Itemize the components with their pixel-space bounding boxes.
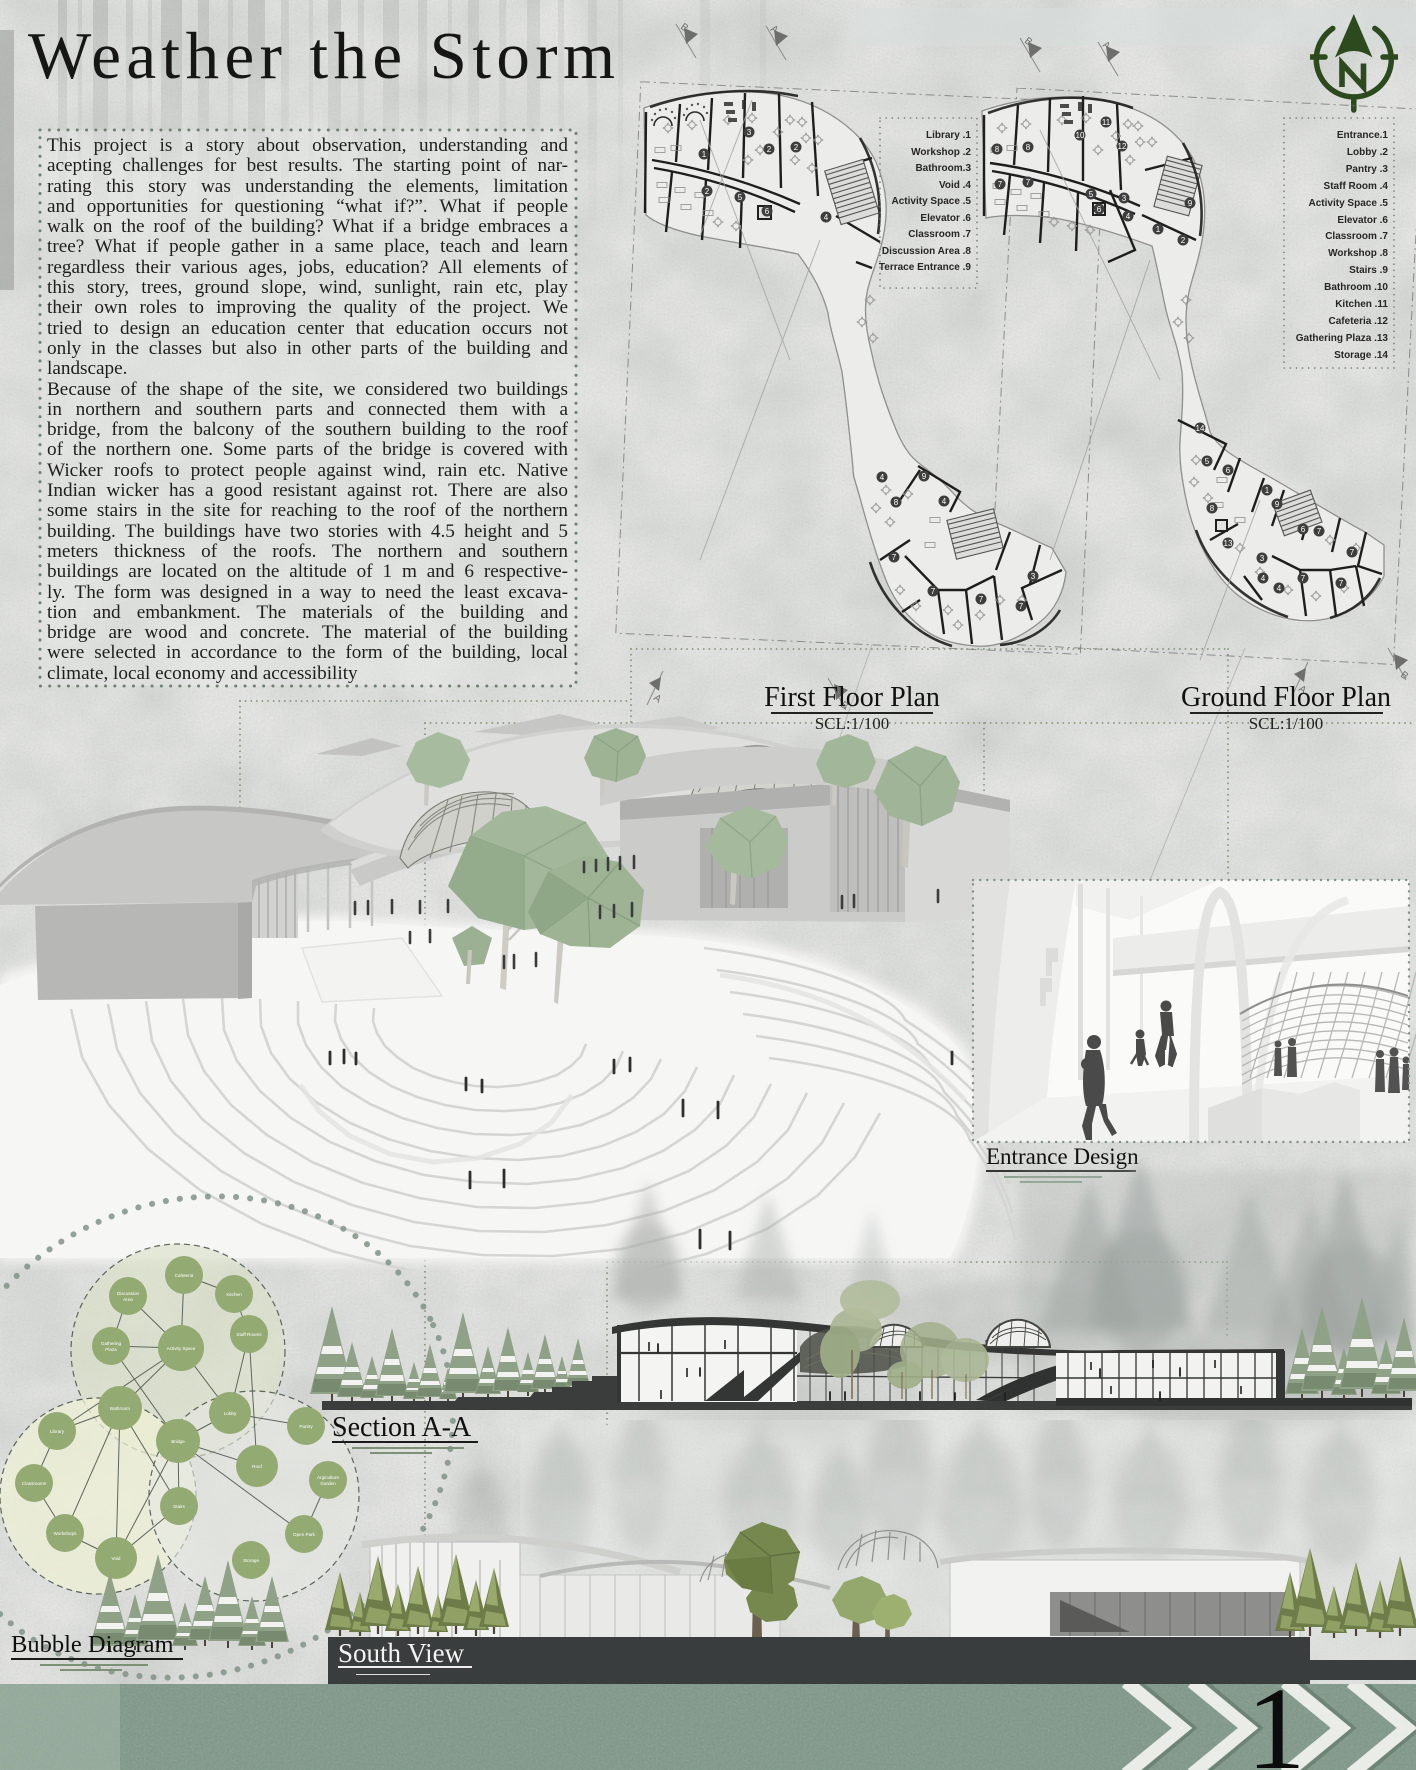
svg-text:Lobby: Lobby: [224, 1411, 237, 1416]
svg-text:Staff Rooms: Staff Rooms: [236, 1332, 262, 1337]
svg-text:Plaza: Plaza: [105, 1347, 117, 1352]
svg-text:Bathroom: Bathroom: [110, 1406, 130, 1411]
svg-text:1: 1: [1247, 1684, 1306, 1770]
svg-text:Kitchen: Kitchen: [226, 1292, 242, 1297]
svg-text:Area: Area: [123, 1297, 133, 1302]
svg-text:Gathering: Gathering: [101, 1341, 122, 1346]
svg-text:Activity Space: Activity Space: [167, 1346, 196, 1351]
svg-text:Discussion: Discussion: [117, 1291, 140, 1296]
svg-text:Cafeteria: Cafeteria: [175, 1273, 194, 1278]
